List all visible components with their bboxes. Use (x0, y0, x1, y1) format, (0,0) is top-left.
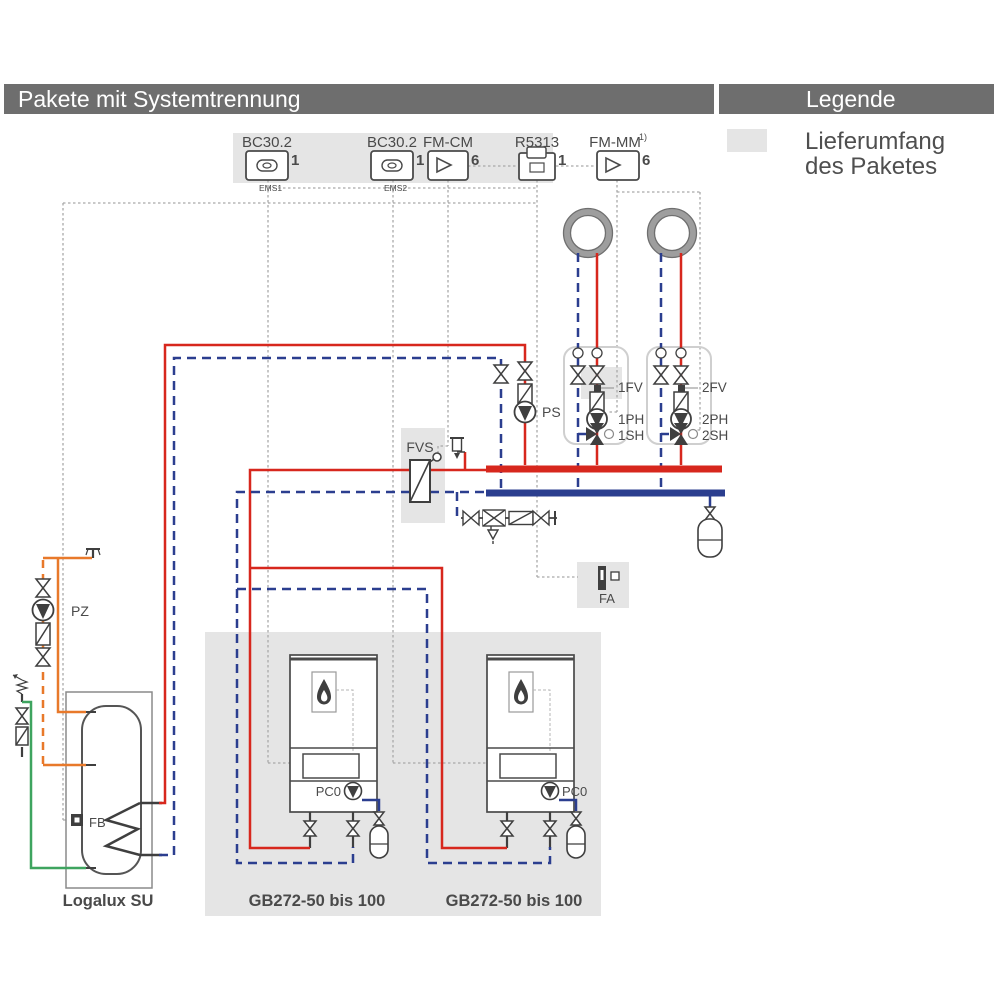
fb-sensor-dot (75, 818, 80, 823)
valve-cold-water (16, 708, 28, 724)
label-1fv: 1FV (618, 380, 643, 395)
qty-bc1: 1 (291, 152, 299, 169)
air-vent-icon (450, 438, 465, 459)
check-valve-pz (36, 623, 50, 645)
storage-tank (66, 692, 162, 888)
label-1sh: 1SH (618, 428, 644, 443)
fill-valve-1 (463, 511, 479, 525)
label-pc0-2: PC0 (562, 784, 587, 799)
tap-icon (86, 549, 100, 555)
label-fmmm-footnote: 1) (639, 132, 647, 142)
fill-unit (463, 510, 555, 544)
qty-r5313: 1 (558, 152, 566, 169)
label-bc1: BC30.2 (242, 134, 292, 151)
label-pz: PZ (71, 603, 89, 619)
valve-pz-top (36, 579, 50, 597)
consumer-circle-1 (564, 209, 613, 258)
module-fmcm (428, 151, 468, 180)
label-ps: PS (542, 404, 561, 420)
label-tank: Logalux SU (63, 892, 154, 910)
label-ems2: EMS2 (384, 183, 407, 193)
thermometers (573, 348, 686, 358)
label-1ph: 1PH (618, 412, 644, 427)
valve-c2-flow (674, 366, 688, 384)
label-pc0-1: PC0 (316, 784, 341, 799)
module-bc2 (371, 151, 413, 180)
label-fvs: FVS (406, 439, 433, 455)
fill-valve-2 (533, 511, 549, 525)
schematic: BC30.2 BC30.2 FM-CM R5313 FM-MM 1) 1 1 6… (0, 0, 1000, 1000)
fill-unit-branch (457, 492, 461, 518)
valve-ps-return (494, 365, 508, 383)
qty-fmcm: 6 (471, 152, 479, 169)
valve-ps-flow (518, 362, 532, 380)
label-2fv: 2FV (702, 380, 727, 395)
label-2ph: 2PH (702, 412, 728, 427)
label-2sh: 2SH (702, 428, 728, 443)
page: Pakete mit Systemtrennung Legende Liefer… (0, 0, 1000, 1000)
label-bc2: BC30.2 (367, 134, 417, 151)
pump-pz-icon (33, 600, 54, 621)
safety-valve-icon (13, 674, 27, 694)
expansion-vessel-boiler2 (567, 826, 585, 858)
expansion-vessel-main (698, 519, 722, 557)
valve-pz-bottom (36, 648, 50, 666)
label-fb: FB (89, 815, 106, 830)
tank-vessel (82, 706, 141, 874)
control-panel-1 (303, 754, 359, 778)
label-r5313: R5313 (515, 134, 559, 151)
consumer-circle-2 (648, 209, 697, 258)
qty-bc2: 1 (416, 152, 424, 169)
pump-ps-icon (515, 402, 536, 423)
fvs-sensor-icon (433, 453, 441, 461)
label-fmcm: FM-CM (423, 134, 473, 151)
sensor-2fv-icon (678, 385, 685, 392)
control-panel-2 (500, 754, 556, 778)
boiler-2 (487, 655, 574, 812)
expansion-vessel-boiler1 (370, 826, 388, 858)
module-fmmm (597, 151, 639, 180)
label-fa: FA (599, 591, 615, 606)
sensor-1fv-icon (594, 385, 601, 392)
label-fmmm: FM-MM (589, 134, 641, 151)
cap-valve-mag-main (705, 507, 715, 520)
valve-c2-return (654, 366, 668, 384)
label-ems1: EMS1 (259, 183, 282, 193)
label-boiler2: GB272-50 bis 100 (446, 892, 583, 910)
heating-circuit-consumers (564, 209, 697, 258)
qty-fmmm: 6 (642, 152, 650, 169)
check-valve-cold (16, 727, 28, 745)
module-bc1 (246, 151, 288, 180)
label-boiler1: GB272-50 bis 100 (249, 892, 386, 910)
